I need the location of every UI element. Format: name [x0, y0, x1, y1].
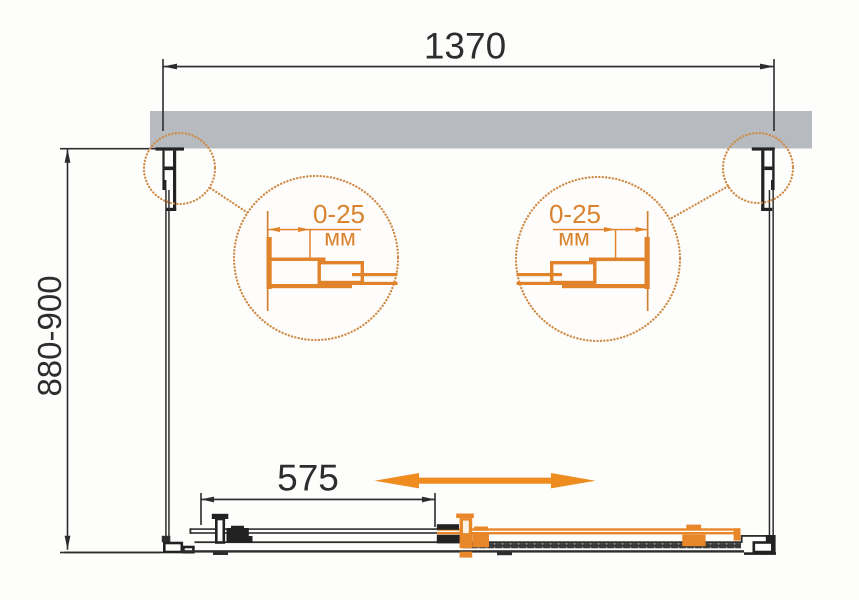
svg-text:1370: 1370 — [424, 26, 506, 67]
svg-text:880-900: 880-900 — [31, 275, 68, 396]
svg-text:575: 575 — [277, 458, 339, 499]
svg-text:мм: мм — [324, 225, 356, 251]
svg-text:мм: мм — [558, 225, 590, 251]
